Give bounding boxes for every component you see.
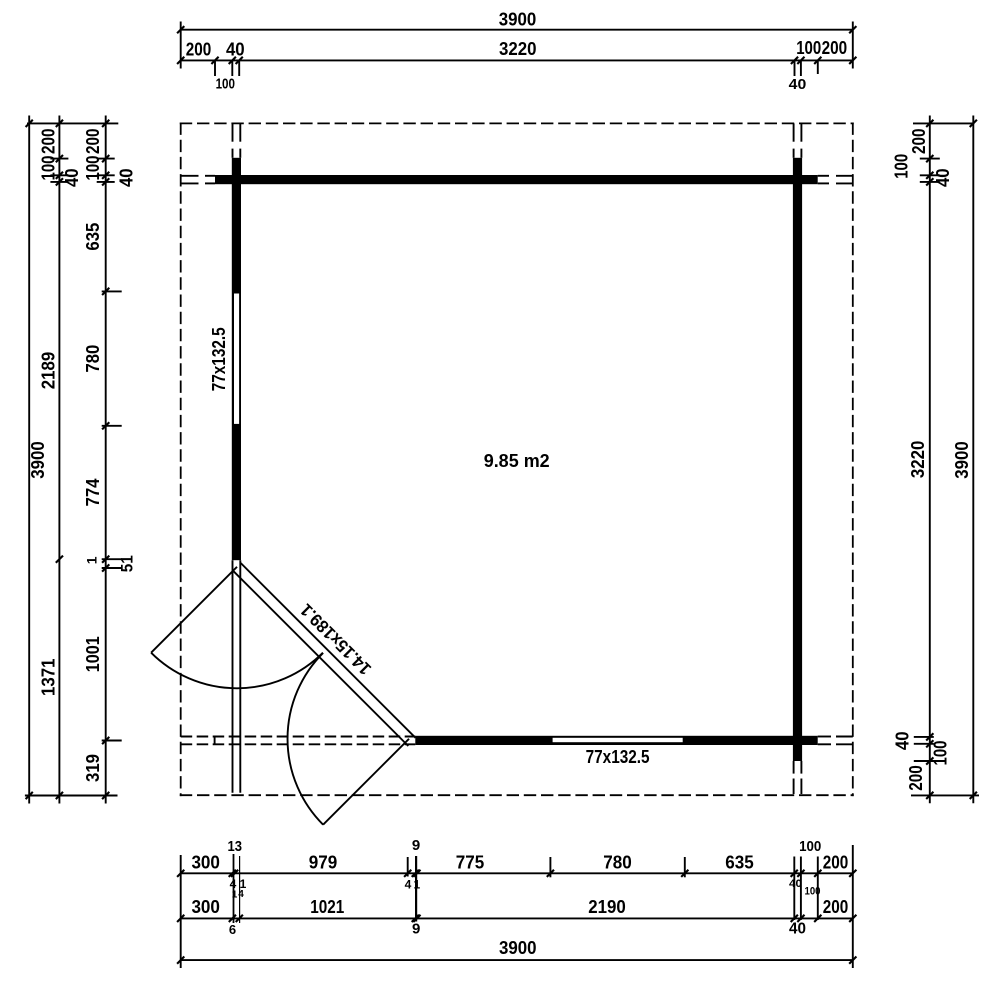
svg-text:9.85 m2: 9.85 m2 <box>484 450 550 471</box>
svg-text:9: 9 <box>412 921 420 938</box>
svg-text:9: 9 <box>412 837 420 854</box>
svg-text:1371: 1371 <box>38 659 59 697</box>
svg-text:200: 200 <box>82 128 103 154</box>
svg-text:51: 51 <box>118 555 137 572</box>
svg-text:635: 635 <box>82 223 103 251</box>
svg-text:100: 100 <box>796 37 821 58</box>
svg-text:3900: 3900 <box>499 937 537 958</box>
svg-text:780: 780 <box>82 345 103 373</box>
svg-text:100: 100 <box>799 838 821 855</box>
svg-text:2190: 2190 <box>588 896 626 917</box>
svg-text:40: 40 <box>61 168 82 187</box>
svg-text:1021: 1021 <box>310 896 344 917</box>
svg-text:200: 200 <box>908 128 929 154</box>
svg-text:1001: 1001 <box>82 636 103 672</box>
svg-text:775: 775 <box>456 851 485 872</box>
svg-text:100: 100 <box>38 156 59 181</box>
svg-text:100: 100 <box>890 154 911 179</box>
svg-text:77x132.5: 77x132.5 <box>586 747 650 767</box>
svg-text:77x132.5: 77x132.5 <box>209 327 229 391</box>
svg-text:13: 13 <box>227 838 242 855</box>
svg-text:979: 979 <box>309 852 338 873</box>
svg-text:40: 40 <box>892 731 913 750</box>
svg-text:780: 780 <box>603 851 632 872</box>
svg-text:3900: 3900 <box>951 441 972 479</box>
svg-text:100: 100 <box>930 741 951 766</box>
svg-text:40: 40 <box>932 168 953 187</box>
svg-text:6: 6 <box>229 922 236 937</box>
svg-text:4: 4 <box>405 878 412 892</box>
svg-text:3900: 3900 <box>499 9 537 30</box>
svg-text:3220: 3220 <box>499 38 537 59</box>
svg-text:100: 100 <box>216 76 235 93</box>
svg-text:40: 40 <box>789 76 807 93</box>
svg-text:200: 200 <box>38 128 59 154</box>
svg-text:774: 774 <box>82 478 103 507</box>
svg-text:200: 200 <box>905 765 926 791</box>
svg-text:40: 40 <box>789 921 806 938</box>
svg-text:635: 635 <box>725 851 754 872</box>
svg-text:100: 100 <box>82 156 103 181</box>
svg-text:200: 200 <box>186 39 212 60</box>
svg-text:40: 40 <box>226 39 245 60</box>
svg-text:300: 300 <box>191 851 220 872</box>
svg-text:1: 1 <box>84 556 100 564</box>
svg-text:3900: 3900 <box>27 441 48 479</box>
svg-text:200: 200 <box>823 896 849 917</box>
svg-text:40: 40 <box>116 168 137 187</box>
svg-text:200: 200 <box>823 851 849 872</box>
svg-text:319: 319 <box>82 754 103 782</box>
svg-text:2189: 2189 <box>38 352 59 390</box>
svg-text:300: 300 <box>191 896 220 917</box>
svg-text:200: 200 <box>822 37 848 58</box>
svg-text:3220: 3220 <box>907 441 928 479</box>
